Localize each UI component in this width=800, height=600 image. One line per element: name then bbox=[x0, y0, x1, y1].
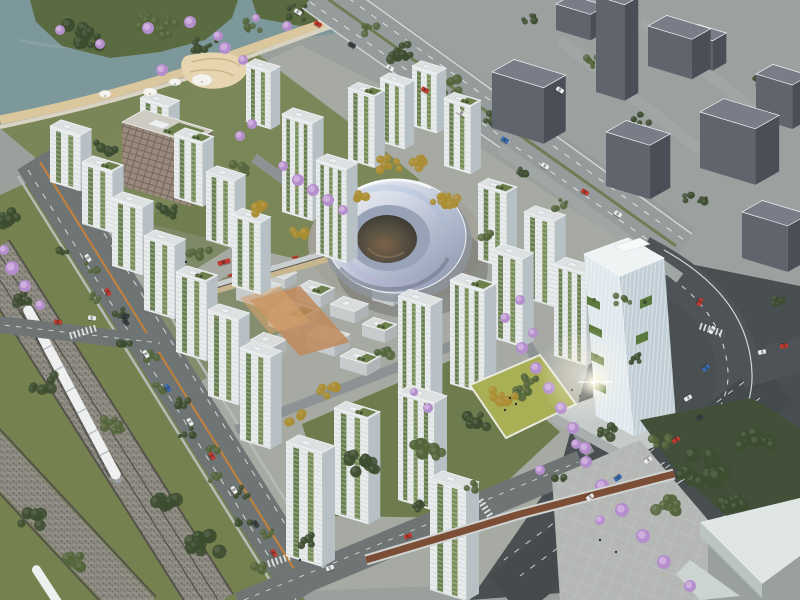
blossom-tree bbox=[5, 261, 19, 275]
person-figure bbox=[515, 403, 517, 405]
blossom-tree bbox=[657, 555, 671, 569]
blossom-tree bbox=[292, 174, 304, 186]
blossom-tree bbox=[535, 465, 545, 475]
blossom-tree bbox=[213, 31, 223, 41]
waterfront-canopy bbox=[143, 88, 157, 96]
blossom-tree bbox=[567, 422, 579, 434]
residential-tower bbox=[246, 59, 280, 130]
person-figure bbox=[299, 559, 301, 561]
blossom-tree bbox=[410, 388, 418, 396]
blossom-tree bbox=[282, 21, 292, 31]
waterfront-canopy bbox=[99, 90, 111, 97]
residential-tower bbox=[240, 342, 282, 450]
blossom-tree bbox=[35, 300, 45, 310]
blossom-tree bbox=[219, 42, 231, 54]
context-building bbox=[596, 0, 638, 101]
blossom-tree bbox=[19, 280, 31, 292]
residential-tower bbox=[232, 208, 271, 295]
person-figure bbox=[504, 409, 506, 411]
blossom-tree bbox=[238, 55, 248, 65]
person-figure bbox=[599, 539, 601, 541]
torus-inner-bowl bbox=[357, 215, 417, 263]
blossom-tree bbox=[338, 205, 348, 215]
person-figure bbox=[615, 551, 617, 553]
waterfront-canopy bbox=[169, 78, 181, 85]
blossom-tree bbox=[516, 342, 528, 354]
residential-tower bbox=[348, 82, 385, 168]
blossom-tree bbox=[307, 184, 319, 196]
residential-tower bbox=[444, 92, 481, 174]
waterfront-canopy bbox=[192, 74, 212, 86]
blossom-tree bbox=[684, 580, 696, 592]
blossom-tree bbox=[184, 16, 196, 28]
blossom-tree bbox=[156, 64, 168, 76]
context-building bbox=[606, 121, 670, 200]
aerial-masterplan-rendering bbox=[0, 0, 800, 600]
residential-tower bbox=[492, 244, 534, 347]
residential-tower bbox=[412, 61, 446, 134]
blossom-tree bbox=[142, 22, 154, 34]
layer-fx bbox=[537, 327, 633, 423]
residential-tower bbox=[316, 154, 358, 263]
blossom-tree bbox=[595, 515, 605, 525]
person-figure bbox=[185, 261, 187, 263]
blossom-tree bbox=[423, 403, 433, 413]
blossom-tree bbox=[322, 194, 334, 206]
blossom-tree bbox=[55, 25, 65, 35]
blossom-tree bbox=[278, 161, 288, 171]
aerial-rendering-stage bbox=[0, 0, 800, 600]
person-figure bbox=[509, 397, 511, 399]
residential-tower bbox=[380, 73, 414, 150]
context-building bbox=[492, 60, 566, 144]
vehicle bbox=[121, 313, 130, 319]
blossom-tree bbox=[636, 529, 650, 543]
east-spur-road bbox=[740, 352, 800, 372]
blossom-tree bbox=[515, 295, 525, 305]
blossom-tree bbox=[528, 328, 538, 338]
tree-cluster bbox=[116, 339, 133, 347]
blossom-tree bbox=[235, 131, 245, 141]
blossom-tree bbox=[252, 14, 260, 22]
blossom-tree bbox=[580, 456, 592, 468]
blossom-tree bbox=[571, 439, 581, 449]
vehicle bbox=[88, 315, 97, 321]
vehicle bbox=[54, 319, 63, 325]
blossom-tree bbox=[95, 39, 105, 49]
blossom-tree bbox=[615, 503, 629, 517]
blossom-tree bbox=[247, 119, 257, 129]
blossom-tree bbox=[500, 313, 510, 323]
